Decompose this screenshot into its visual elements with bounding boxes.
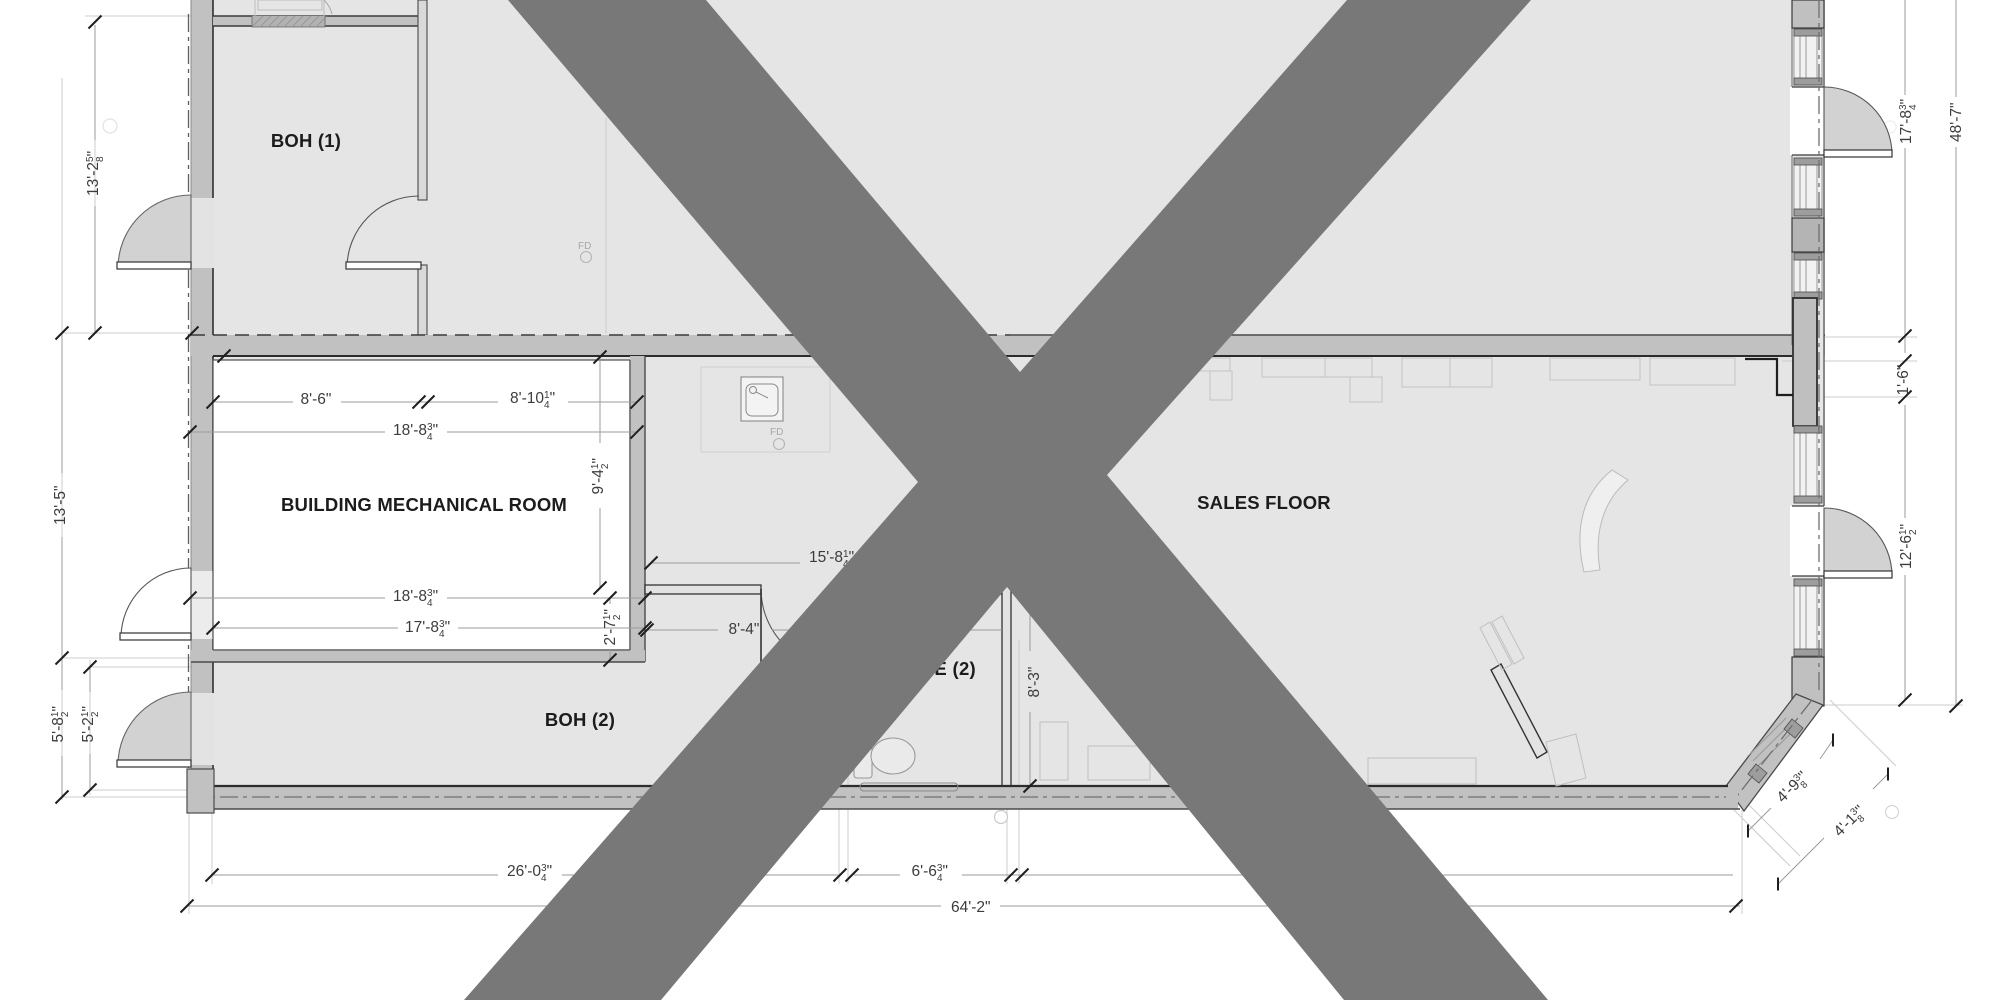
svg-text:FD: FD <box>578 241 591 252</box>
svg-text:FD: FD <box>770 427 783 438</box>
svg-text:1'-6": 1'-6" <box>1895 365 1912 396</box>
svg-text:BUILDING MECHANICAL ROOM: BUILDING MECHANICAL ROOM <box>281 494 567 515</box>
svg-text:SALES FLOOR: SALES FLOOR <box>1197 492 1331 513</box>
svg-text:13'-5": 13'-5" <box>52 486 69 525</box>
svg-text:64'-2": 64'-2" <box>951 899 990 916</box>
svg-text:8'-6": 8'-6" <box>301 391 332 408</box>
svg-text:48'-7": 48'-7" <box>1948 103 1965 142</box>
svg-text:8'-4": 8'-4" <box>729 621 760 638</box>
svg-text:BOH (2): BOH (2) <box>545 709 615 730</box>
svg-text:8'-3": 8'-3" <box>1026 667 1043 698</box>
svg-text:BOH (1): BOH (1) <box>271 130 341 151</box>
